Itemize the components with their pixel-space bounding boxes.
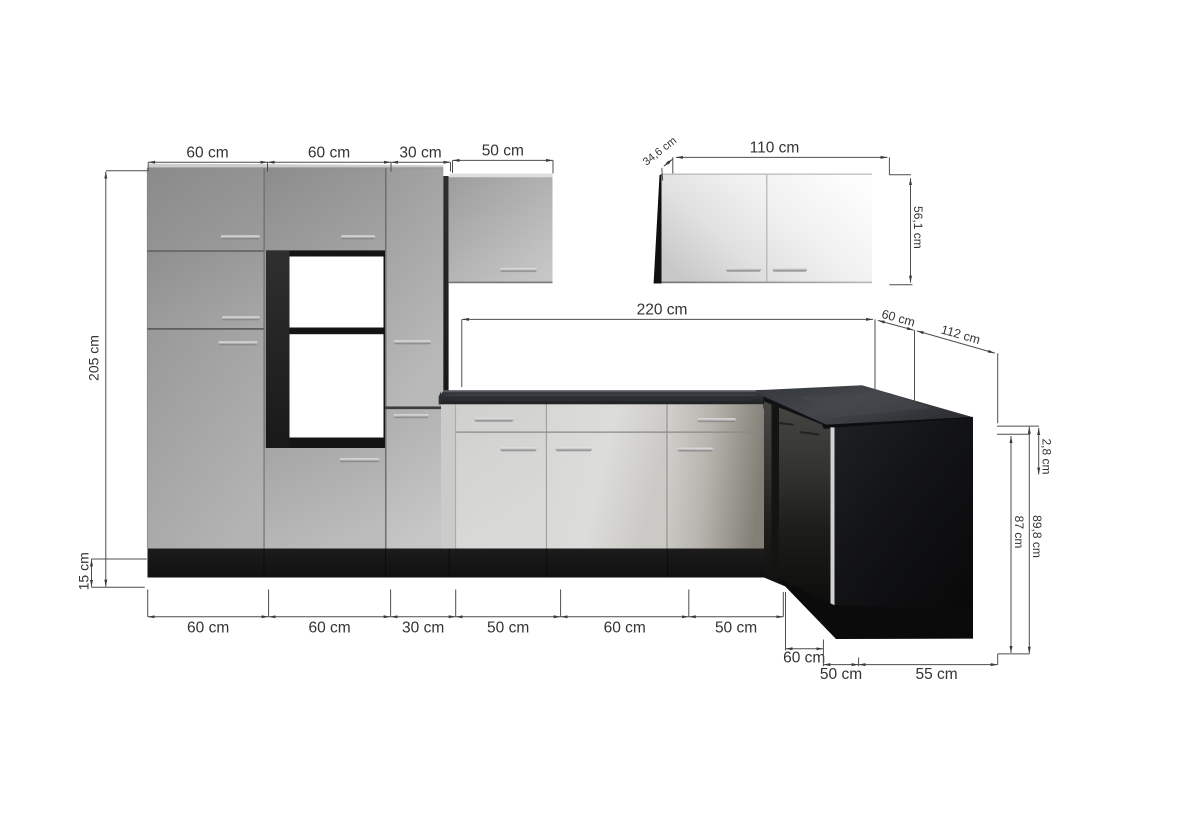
- svg-text:50 cm: 50 cm: [487, 620, 529, 637]
- svg-text:89,8 cm: 89,8 cm: [1030, 515, 1044, 558]
- svg-text:56,1 cm: 56,1 cm: [911, 206, 925, 249]
- svg-text:55 cm: 55 cm: [915, 666, 957, 683]
- svg-text:60 cm: 60 cm: [308, 145, 350, 162]
- svg-text:110 cm: 110 cm: [750, 140, 800, 157]
- svg-text:2,8 cm: 2,8 cm: [1040, 438, 1054, 474]
- svg-text:30 cm: 30 cm: [402, 620, 444, 637]
- svg-text:50 cm: 50 cm: [482, 143, 524, 160]
- svg-text:60 cm: 60 cm: [186, 145, 228, 162]
- svg-text:50 cm: 50 cm: [820, 666, 862, 683]
- svg-text:60 cm: 60 cm: [187, 620, 229, 637]
- svg-text:60 cm: 60 cm: [783, 650, 825, 667]
- svg-text:87 cm: 87 cm: [1012, 516, 1026, 549]
- svg-text:30 cm: 30 cm: [399, 145, 441, 162]
- svg-text:205 cm: 205 cm: [86, 335, 102, 381]
- svg-text:50 cm: 50 cm: [715, 620, 757, 637]
- svg-text:60 cm: 60 cm: [604, 620, 646, 637]
- svg-text:15 cm: 15 cm: [75, 552, 91, 590]
- svg-text:220 cm: 220 cm: [637, 302, 688, 319]
- svg-text:60 cm: 60 cm: [308, 620, 350, 637]
